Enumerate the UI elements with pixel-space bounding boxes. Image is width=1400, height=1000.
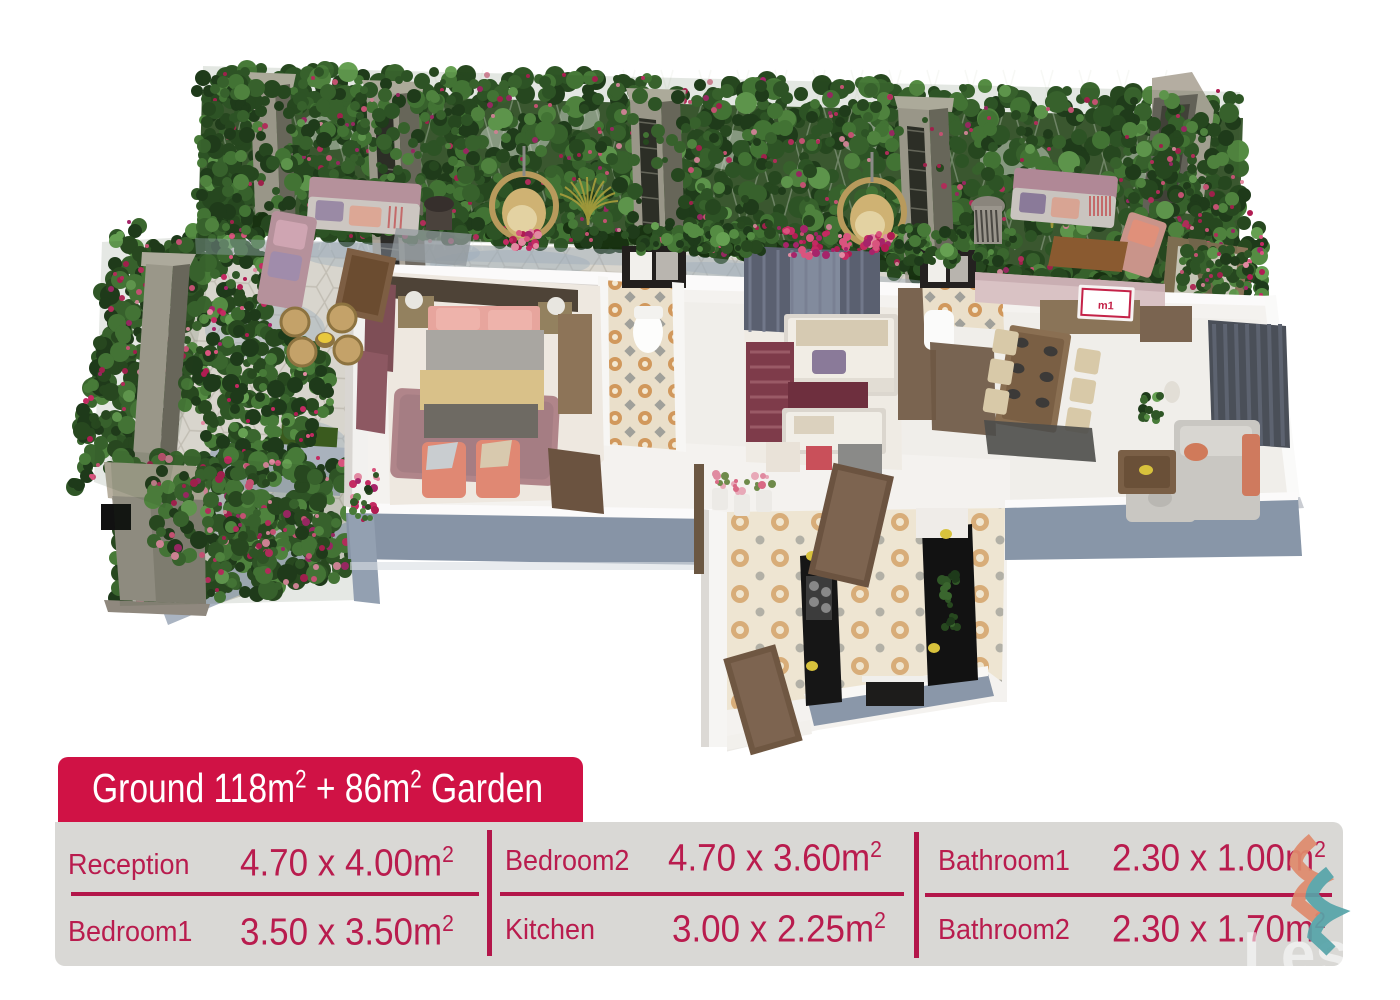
svg-text:m1: m1 [1098, 300, 1115, 313]
